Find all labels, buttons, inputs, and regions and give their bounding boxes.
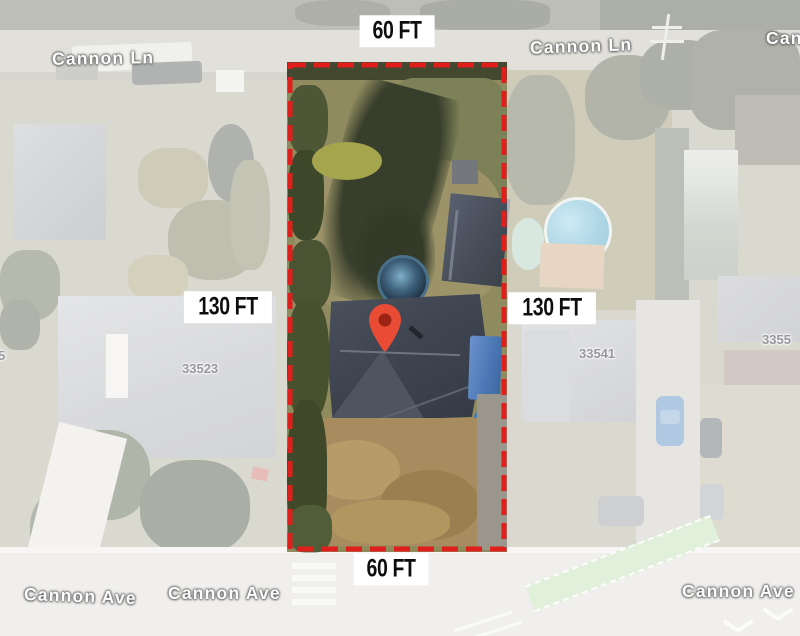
- dimension-label-top: 60 FT: [360, 15, 435, 47]
- yard-patch: [330, 500, 450, 545]
- aerial-parcel-map: 60 FT 130 FT 130 FT 60 FT Cannon Ln Cann…: [0, 0, 800, 636]
- street-label-cannon-ln-center: Cannon Ln: [530, 34, 633, 59]
- street-label-cannon-ln-far-right: Cann: [766, 28, 800, 49]
- blue-tarp: [468, 335, 502, 400]
- street-label-cannon-ln-left: Cannon Ln: [52, 47, 155, 70]
- dimension-label-right: 130 FT: [508, 292, 596, 324]
- parcel-number-33523: 33523: [182, 361, 218, 376]
- backyard-shed: [452, 160, 478, 184]
- subject-driveway: [477, 394, 507, 550]
- parcel-number-left-edge: 5: [0, 348, 5, 363]
- dimension-label-bottom: 60 FT: [354, 553, 429, 585]
- street-label-cannon-ave-right: Cannon Ave: [682, 581, 795, 602]
- map-pin-icon: [369, 304, 401, 352]
- parcel-number-33541: 33541: [579, 346, 615, 361]
- dimension-label-left: 130 FT: [184, 291, 272, 323]
- bush: [312, 142, 382, 180]
- street-label-cannon-ave-left-a: Cannon Ave: [24, 584, 137, 609]
- parcel-number-right-edge: 3355: [762, 332, 791, 347]
- street-label-cannon-ave-left-b: Cannon Ave: [168, 583, 281, 604]
- bush: [288, 85, 328, 155]
- tree-blob: [288, 505, 332, 553]
